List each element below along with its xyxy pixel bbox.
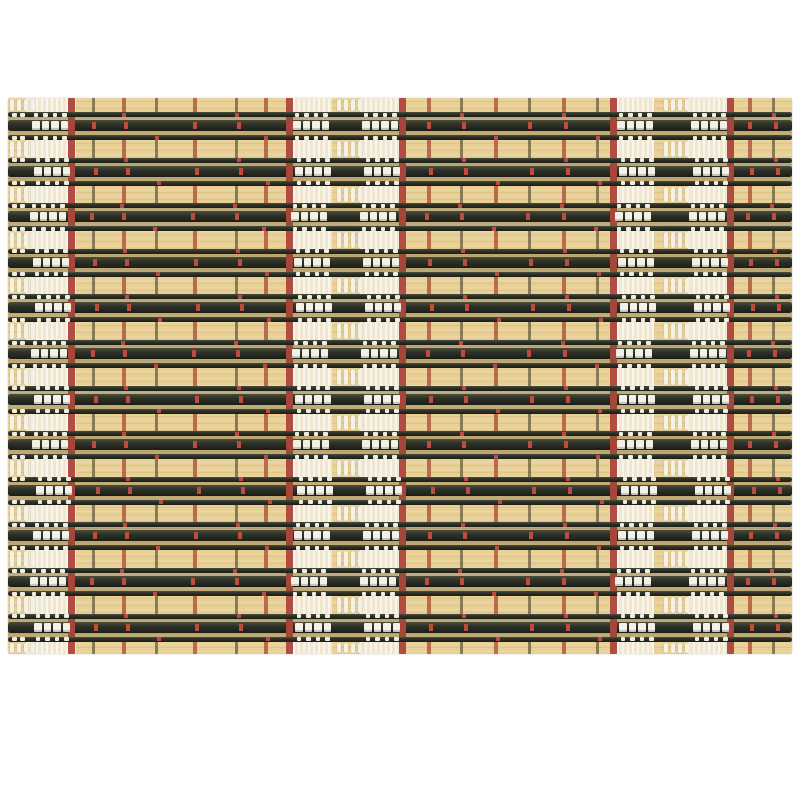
white-stitch-mark — [306, 409, 311, 413]
red-weft-dash — [774, 386, 778, 390]
white-stitch-mark — [324, 523, 329, 527]
white-stitch-mark — [721, 455, 726, 459]
red-weft-dash — [92, 122, 96, 129]
white-stitch-mark — [693, 432, 698, 436]
red-weft-dash — [93, 259, 97, 266]
white-stitch-mark — [641, 318, 646, 322]
red-weft-dash — [195, 624, 199, 631]
white-stitch-square — [702, 531, 710, 540]
white-stitch-mark — [649, 637, 654, 641]
red-weft-dash — [462, 122, 466, 129]
white-stitch-mark — [304, 113, 309, 117]
white-edge-stitch — [12, 523, 17, 527]
slat-seam — [235, 231, 238, 249]
white-stitch-square — [617, 440, 625, 449]
slat-seam — [122, 140, 126, 158]
white-stitch-mark — [302, 227, 307, 231]
white-stitch-square — [53, 167, 61, 176]
white-stitch-square — [625, 212, 633, 221]
white-warp-tuft — [24, 369, 28, 385]
white-stitch-mark — [293, 204, 298, 208]
slat-seam — [460, 596, 463, 614]
light-warp-patch — [288, 186, 332, 204]
white-stitch-square — [313, 531, 321, 540]
slat-seam — [562, 98, 566, 112]
white-warp-tuft — [358, 278, 362, 294]
white-stitch-mark — [36, 614, 41, 618]
white-warp-tuft — [351, 643, 355, 653]
white-stitch-square — [305, 167, 313, 176]
white-warp-tuft — [24, 643, 28, 653]
white-stitch-mark — [306, 181, 311, 185]
red-weft-dash — [597, 546, 601, 550]
white-stitch-mark — [384, 272, 389, 276]
white-stitch-mark — [38, 477, 43, 481]
white-stitch-square — [63, 167, 71, 176]
slat-seam — [596, 140, 599, 158]
white-stitch-mark — [315, 272, 320, 276]
white-stitch-mark — [43, 136, 48, 140]
white-stitch-square — [648, 167, 656, 176]
white-stitch-mark — [695, 637, 700, 641]
white-stitch-mark — [42, 341, 47, 345]
white-stitch-mark — [54, 523, 59, 527]
white-stitch-mark — [704, 614, 709, 618]
white-stitch-square — [711, 531, 719, 540]
white-stitch-mark — [41, 227, 46, 231]
white-stitch-mark — [313, 341, 318, 345]
slat-seam — [596, 231, 599, 249]
slat-seam — [122, 98, 126, 112]
red-weft-dash — [429, 168, 433, 175]
white-stitch-mark — [704, 158, 709, 162]
white-warp-tuft — [17, 369, 21, 385]
white-stitch-mark — [35, 523, 40, 527]
white-stitch-mark — [630, 386, 635, 390]
white-stitch-square — [312, 121, 320, 130]
white-stitch-mark — [305, 546, 310, 550]
white-stitch-mark — [712, 432, 717, 436]
white-stitch-square — [291, 577, 299, 586]
white-stitch-mark — [293, 569, 298, 573]
white-stitch-square — [374, 623, 382, 632]
white-stitch-square — [626, 349, 634, 358]
white-warp-tuft — [664, 597, 668, 613]
dark-rod — [8, 272, 792, 277]
white-stitch-mark — [636, 592, 641, 596]
red-weft-dash — [750, 396, 754, 403]
white-stitch-mark — [62, 136, 67, 140]
white-stitch-square — [393, 623, 401, 632]
red-weft-dash — [562, 113, 566, 117]
light-warp-patch — [288, 322, 332, 340]
white-edge-stitch — [20, 614, 25, 618]
red-weft-dash — [462, 386, 466, 390]
red-weft-dash — [464, 477, 468, 481]
red-weft-dash — [773, 523, 777, 527]
white-stitch-square — [627, 121, 635, 130]
light-warp-patch — [612, 596, 654, 614]
white-edge-stitch — [12, 227, 17, 231]
white-warp-tuft — [24, 551, 28, 567]
dark-rod — [8, 226, 792, 231]
white-stitch-square — [619, 167, 627, 176]
white-stitch-mark — [725, 500, 730, 504]
white-stitch-mark — [638, 136, 643, 140]
white-warp-tuft — [351, 551, 355, 567]
white-stitch-mark — [618, 341, 623, 345]
white-warp-tuft — [358, 187, 362, 203]
white-stitch-mark — [32, 204, 37, 208]
white-stitch-mark — [51, 592, 56, 596]
white-stitch-mark — [303, 341, 308, 345]
dark-rod — [8, 203, 792, 208]
white-warp-tuft — [358, 597, 362, 613]
white-stitch-mark — [65, 295, 70, 299]
white-stitch-square — [305, 623, 313, 632]
red-weft-dash — [774, 122, 778, 129]
white-stitch-square — [718, 212, 726, 221]
white-stitch-square — [294, 258, 302, 267]
white-stitch-mark — [390, 227, 395, 231]
red-weft-dash — [264, 455, 268, 459]
white-stitch-mark — [639, 249, 644, 253]
white-warp-tuft — [337, 643, 341, 653]
slat-seam — [494, 140, 498, 158]
white-edge-stitch — [20, 181, 25, 185]
white-warp-tuft — [337, 141, 341, 157]
white-stitch-mark — [55, 614, 60, 618]
light-warp-patch — [360, 459, 404, 477]
light-warp-patch — [360, 368, 404, 386]
slat-seam — [772, 140, 775, 158]
slat-seam — [562, 459, 566, 477]
dark-rod — [8, 545, 792, 550]
white-stitch-square — [636, 121, 644, 130]
white-stitch-mark — [639, 272, 644, 276]
white-stitch-square — [619, 623, 627, 632]
white-warp-tuft — [664, 415, 668, 431]
dark-rod — [8, 135, 792, 140]
white-stitch-mark — [691, 592, 696, 596]
white-stitch-mark — [308, 477, 313, 481]
white-stitch-mark — [710, 204, 715, 208]
dark-rod — [8, 637, 792, 642]
red-weft-dash — [526, 213, 530, 220]
white-stitch-mark — [619, 432, 624, 436]
white-stitch-mark — [714, 614, 719, 618]
red-weft-dash — [777, 304, 781, 311]
white-stitch-square — [631, 486, 639, 495]
white-stitch-mark — [54, 249, 59, 253]
white-stitch-square — [303, 440, 311, 449]
white-stitch-square — [639, 303, 647, 312]
white-stitch-square — [40, 577, 48, 586]
white-warp-tuft — [17, 141, 21, 157]
red-weft-dash — [123, 350, 127, 357]
white-stitch-mark — [648, 249, 653, 253]
white-warp-tuft — [24, 460, 28, 476]
red-thread-crossing — [610, 120, 617, 131]
white-stitch-mark — [640, 386, 645, 390]
red-weft-dash — [241, 487, 245, 494]
red-weft-dash — [94, 624, 98, 631]
red-weft-dash — [460, 213, 464, 220]
white-stitch-mark — [392, 432, 397, 436]
white-warp-tuft — [31, 369, 35, 385]
white-stitch-mark — [364, 113, 369, 117]
white-stitch-mark — [720, 364, 725, 368]
slat-seam — [264, 186, 268, 204]
white-stitch-square — [382, 531, 390, 540]
white-stitch-mark — [297, 409, 302, 413]
white-stitch-mark — [34, 432, 39, 436]
slat-seam — [235, 459, 238, 477]
white-stitch-mark — [719, 204, 724, 208]
slat-seam — [193, 140, 197, 158]
white-stitch-mark — [63, 272, 68, 276]
slat-seam — [193, 505, 197, 523]
white-stitch-square — [381, 440, 389, 449]
white-warp-tuft — [337, 232, 341, 248]
white-stitch-mark — [323, 136, 328, 140]
white-stitch-mark — [362, 227, 367, 231]
white-stitch-square — [50, 349, 58, 358]
white-edge-stitch — [20, 136, 25, 140]
white-stitch-square — [692, 531, 700, 540]
light-warp-patch — [360, 550, 404, 568]
slat-seam — [562, 140, 566, 158]
white-warp-tuft — [671, 187, 675, 203]
white-stitch-mark — [383, 136, 388, 140]
white-stitch-mark — [700, 227, 705, 231]
dark-rod — [8, 340, 792, 345]
white-warp-tuft — [358, 551, 362, 567]
white-stitch-mark — [620, 249, 625, 253]
white-stitch-mark — [32, 592, 37, 596]
white-warp-tuft — [678, 278, 682, 294]
white-stitch-mark — [316, 614, 321, 618]
white-stitch-square — [637, 531, 645, 540]
white-stitch-mark — [321, 227, 326, 231]
white-stitch-square — [638, 623, 646, 632]
white-stitch-mark — [393, 523, 398, 527]
white-stitch-mark — [694, 523, 699, 527]
slat-seam — [122, 368, 126, 386]
white-stitch-square — [374, 167, 382, 176]
white-stitch-square — [301, 212, 309, 221]
white-stitch-mark — [691, 204, 696, 208]
slat-seam — [748, 368, 752, 386]
white-edge-stitch — [12, 136, 17, 140]
white-stitch-square — [54, 303, 62, 312]
white-stitch-square — [363, 258, 371, 267]
white-stitch-square — [699, 212, 707, 221]
white-stitch-mark — [702, 432, 707, 436]
red-weft-dash — [266, 637, 270, 641]
white-stitch-square — [705, 486, 713, 495]
white-stitch-mark — [322, 341, 327, 345]
light-warp-patch — [360, 140, 404, 158]
red-weft-dash — [239, 477, 243, 481]
white-stitch-mark — [650, 295, 655, 299]
white-stitch-mark — [713, 272, 718, 276]
red-thread-crossing — [68, 439, 75, 450]
white-stitch-mark — [705, 318, 710, 322]
white-stitch-mark — [364, 136, 369, 140]
white-stitch-mark — [621, 181, 626, 185]
white-stitch-mark — [326, 318, 331, 322]
red-weft-dash — [597, 272, 601, 276]
white-stitch-mark — [637, 364, 642, 368]
slat-seam — [772, 98, 775, 112]
white-stitch-mark — [697, 500, 702, 504]
red-weft-dash — [493, 364, 497, 368]
white-stitch-mark — [617, 592, 622, 596]
white-stitch-mark — [325, 158, 330, 162]
slat-seam — [494, 368, 498, 386]
red-weft-dash — [600, 500, 604, 504]
white-stitch-square — [371, 349, 379, 358]
slat-seam — [92, 231, 95, 249]
slat-seam — [92, 505, 95, 523]
red-weft-dash — [196, 304, 200, 311]
white-stitch-square — [301, 577, 309, 586]
red-weft-dash — [94, 396, 98, 403]
dark-rod-row — [8, 522, 792, 550]
red-weft-dash — [195, 168, 199, 175]
slat-seam — [264, 98, 268, 112]
red-weft-dash — [236, 249, 240, 253]
dark-rod-row — [8, 614, 792, 642]
red-weft-dash — [770, 204, 774, 208]
white-stitch-square — [638, 395, 646, 404]
white-stitch-mark — [306, 386, 311, 390]
white-stitch-square — [323, 258, 331, 267]
white-warp-tuft — [358, 323, 362, 339]
white-warp-tuft — [358, 232, 362, 248]
red-weft-dash — [96, 487, 100, 494]
white-stitch-mark — [632, 500, 637, 504]
red-thread-crossing — [727, 576, 734, 587]
red-weft-dash — [746, 213, 750, 220]
white-warp-tuft — [10, 415, 14, 431]
red-weft-dash — [90, 578, 94, 585]
slat-seam — [528, 368, 531, 386]
slat-seam — [562, 505, 566, 523]
white-warp-tuft — [358, 415, 362, 431]
white-stitch-mark — [375, 637, 380, 641]
white-stitch-mark — [57, 500, 62, 504]
white-stitch-mark — [631, 318, 636, 322]
white-stitch-mark — [723, 409, 728, 413]
white-stitch-square — [30, 577, 38, 586]
slat-seam — [772, 459, 775, 477]
white-stitch-mark — [395, 295, 400, 299]
slat-seam — [748, 505, 752, 523]
dark-rod — [8, 363, 792, 368]
white-stitch-mark — [630, 614, 635, 618]
slat-seam — [460, 414, 463, 432]
slat-seam — [155, 459, 158, 477]
red-weft-dash — [496, 409, 500, 413]
white-edge-stitch — [20, 386, 25, 390]
red-weft-dash — [237, 386, 241, 390]
white-stitch-mark — [710, 592, 715, 596]
red-weft-dash — [125, 259, 129, 266]
white-warp-tuft — [31, 506, 35, 522]
white-stitch-square — [36, 486, 44, 495]
white-warp-tuft — [664, 643, 668, 653]
white-warp-tuft — [10, 278, 14, 294]
white-stitch-mark — [38, 500, 43, 504]
white-stitch-mark — [366, 614, 371, 618]
white-warp-tuft — [344, 597, 348, 613]
light-warp-patch — [360, 277, 404, 295]
red-weft-dash — [235, 213, 239, 220]
white-stitch-mark — [371, 204, 376, 208]
white-stitch-square — [314, 395, 322, 404]
white-warp-tuft — [337, 551, 341, 567]
white-edge-stitch — [20, 500, 25, 504]
red-weft-dash — [774, 441, 778, 448]
red-weft-dash — [458, 204, 462, 208]
slat-seam — [772, 596, 775, 614]
white-stitch-mark — [375, 158, 380, 162]
white-warp-tuft — [671, 506, 675, 522]
red-weft-dash — [428, 259, 432, 266]
red-weft-dash — [531, 304, 535, 311]
white-warp-tuft — [337, 506, 341, 522]
slat-seam — [748, 140, 752, 158]
white-warp-tuft — [10, 323, 14, 339]
slat-seam — [92, 186, 95, 204]
white-edge-stitch — [12, 546, 17, 550]
white-stitch-square — [691, 440, 699, 449]
white-stitch-mark — [623, 500, 628, 504]
white-warp-tuft — [685, 506, 689, 522]
white-edge-stitch — [12, 272, 17, 276]
white-edge-stitch — [20, 432, 25, 436]
red-weft-dash — [126, 624, 130, 631]
white-stitch-mark — [702, 113, 707, 117]
light-warp-patch — [288, 459, 332, 477]
slat-seam — [155, 642, 158, 654]
white-stitch-mark — [622, 295, 627, 299]
slat-seam — [155, 368, 158, 386]
red-weft-dash — [120, 204, 124, 208]
white-stitch-mark — [385, 409, 390, 413]
white-stitch-square — [293, 121, 301, 130]
white-stitch-square — [710, 440, 718, 449]
white-stitch-mark — [299, 477, 304, 481]
white-warp-tuft — [671, 278, 675, 294]
white-stitch-mark — [648, 272, 653, 276]
white-stitch-mark — [304, 432, 309, 436]
slat-seam — [427, 140, 431, 158]
red-weft-dash — [494, 455, 498, 459]
red-weft-dash — [752, 487, 756, 494]
white-warp-tuft — [31, 597, 35, 613]
slat-seam — [562, 642, 566, 654]
light-warp-patch — [688, 642, 730, 654]
white-stitch-mark — [713, 249, 718, 253]
white-edge-stitch — [12, 249, 17, 253]
red-weft-dash — [90, 213, 94, 220]
white-stitch-square — [376, 486, 384, 495]
white-stitch-mark — [691, 227, 696, 231]
white-stitch-mark — [618, 364, 623, 368]
